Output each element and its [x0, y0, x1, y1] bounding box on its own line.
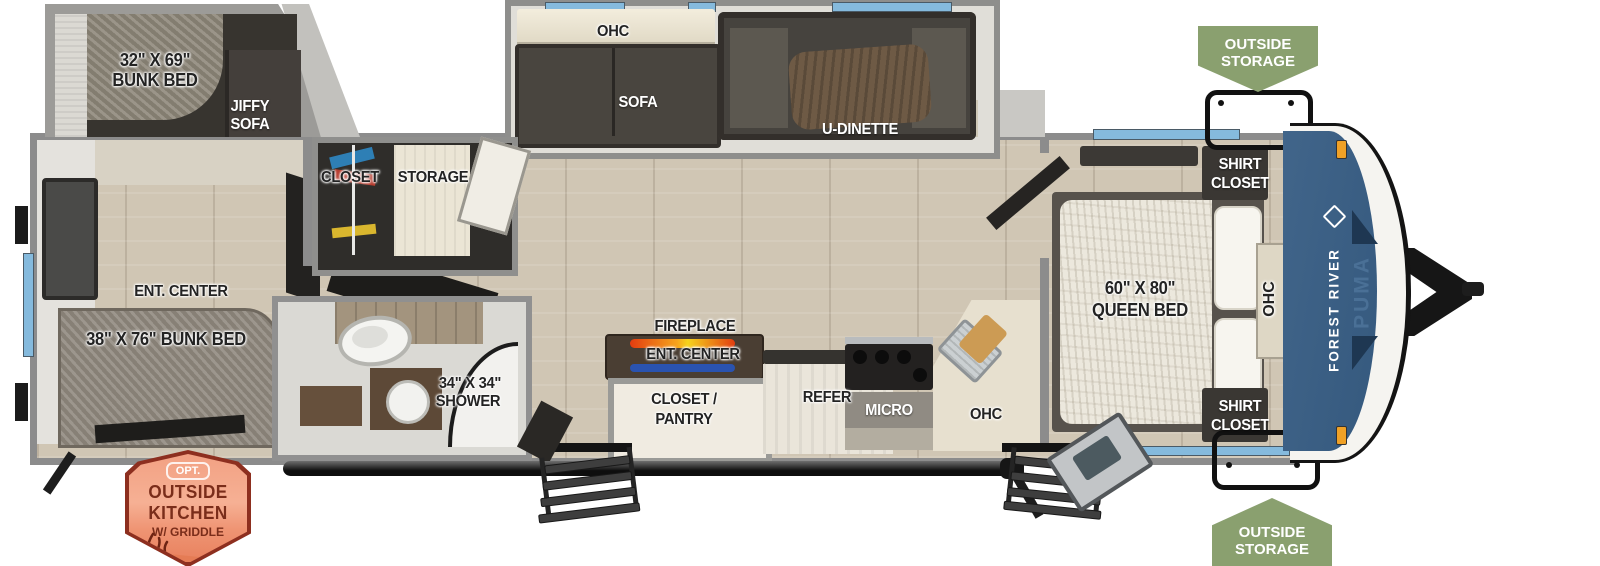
- burner-3: [897, 350, 911, 364]
- shower-label-2: SHOWER: [436, 394, 501, 410]
- wall-bedroom-top: [1040, 139, 1049, 153]
- shirt-top-label-2: CLOSET: [1211, 176, 1269, 192]
- bunk32-label-1: 32" X 69": [120, 51, 190, 69]
- pantry-label-1: CLOSET /: [651, 392, 717, 408]
- wall-bedroom: [1040, 258, 1049, 449]
- u-dinette-label: U-DINETTE: [822, 122, 898, 138]
- shirt-bottom-label-2: CLOSET: [1211, 418, 1269, 434]
- slide-window-3: [832, 2, 952, 12]
- rear-bumper-top: [15, 206, 28, 244]
- entry-steps-left: [539, 446, 643, 525]
- outside-kitchen-line1: OUTSIDE: [132, 482, 244, 503]
- bunk38-label: 38" X 76" BUNK BED: [86, 330, 246, 348]
- kitchen-base: [845, 428, 933, 450]
- u-dinette-cushion-left: [730, 28, 788, 128]
- frame-dot-top-right: [1288, 100, 1294, 106]
- frame-dot-bottom-left: [1226, 462, 1232, 468]
- sofa-divider: [612, 48, 615, 136]
- storage-label: STORAGE: [398, 170, 469, 186]
- storage-cabinet: [394, 145, 470, 256]
- outside-kitchen-badge: OPT. OUTSIDE KITCHEN W/ GRIDDLE: [125, 450, 251, 566]
- burner-4: [913, 368, 927, 382]
- awning-tube: [283, 461, 1013, 476]
- outside-storage-badge-bottom: OUTSIDE STORAGE: [1212, 498, 1332, 566]
- micro-label: MICRO: [865, 403, 913, 419]
- opt-tag: OPT.: [166, 462, 210, 480]
- bedroom-ohc-top: [1080, 146, 1198, 166]
- jiffy-label-1: JIFFY: [231, 99, 270, 115]
- outside-storage-badge-top: OUTSIDE STORAGE: [1198, 26, 1318, 92]
- bunkroom-carpet: [95, 140, 310, 185]
- refer-label: REFER: [803, 390, 852, 406]
- ent-center-main-label: ENT. CENTER: [646, 347, 739, 363]
- frame-dot-top-left: [1218, 100, 1224, 106]
- shower-label-1: 34" X 34": [439, 376, 501, 392]
- marker-light-top: [1336, 140, 1347, 159]
- sofa-label: SOFA: [619, 95, 658, 111]
- ohc-kitchen-label: OHC: [970, 407, 1002, 423]
- burner-2: [875, 350, 889, 364]
- closet-rod: [352, 145, 355, 255]
- outside-storage-bottom-line1: OUTSIDE: [1212, 524, 1332, 541]
- shirt-bottom-label-1: SHIRT: [1219, 399, 1262, 415]
- u-dinette-table: [787, 43, 932, 131]
- outside-kitchen-badge-inner: OPT. OUTSIDE KITCHEN W/ GRIDDLE: [129, 454, 247, 562]
- ent-center-rear-label: ENT. CENTER: [134, 284, 227, 300]
- rear-bumper-bottom: [15, 383, 28, 421]
- rear-tv: [42, 178, 98, 300]
- pillow-top: [1214, 206, 1262, 310]
- cap-model-text: PUMA: [1352, 255, 1373, 329]
- queen-label-2: QUEEN BED: [1092, 301, 1188, 319]
- pantry-label-2: PANTRY: [655, 412, 712, 428]
- bunk32-label-2: BUNK BED: [112, 71, 197, 89]
- queen-label-1: 60" X 80": [1105, 279, 1175, 297]
- outside-storage-top-line2: STORAGE: [1198, 53, 1318, 70]
- rear-window: [23, 253, 34, 357]
- fireplace-label: FIREPLACE: [655, 319, 736, 335]
- closet-label: CLOSET: [321, 170, 379, 186]
- outside-storage-top-line1: OUTSIDE: [1198, 36, 1318, 53]
- range-backsplash: [845, 337, 933, 344]
- ohc-bedroom-label: OHC: [1262, 281, 1278, 317]
- outside-kitchen-line2: KITCHEN: [132, 503, 244, 524]
- burner-1: [853, 350, 867, 364]
- ent-center-blue-bar: [630, 364, 735, 372]
- jiffy-label-2: SOFA: [231, 117, 270, 133]
- ohc-living-label: OHC: [597, 24, 629, 40]
- outside-storage-bottom-line2: STORAGE: [1212, 541, 1332, 558]
- shirt-top-label-1: SHIRT: [1219, 157, 1262, 173]
- badge-grass-art: [129, 528, 247, 562]
- bath-sink: [386, 380, 430, 424]
- bunk-slide-wall-texture: [55, 14, 87, 137]
- cap-maker-text: FOREST RIVER: [1327, 248, 1341, 372]
- marker-light-bottom: [1336, 426, 1347, 445]
- wall-bunkroom: [303, 140, 312, 266]
- rv-floorplan: ENT. CENTER 38" X 76" BUNK BED 32" X 69"…: [0, 0, 1600, 566]
- hitch-coupler: [1462, 282, 1484, 296]
- vanity-counter: [300, 386, 362, 426]
